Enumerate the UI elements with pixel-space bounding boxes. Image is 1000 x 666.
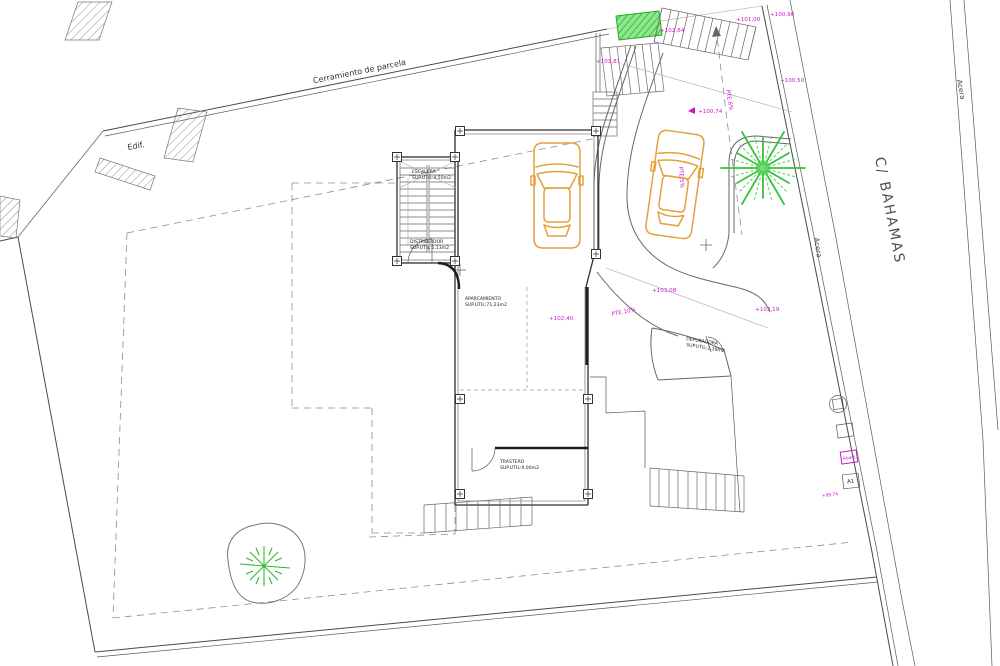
manhole-icon [830,396,847,413]
slope-label: PTE.6% [724,89,734,111]
sidewalk-label-2: Acera [812,237,823,258]
elevation-label: +103,19 [755,307,780,313]
green-planter [616,11,662,40]
fence-label: Cerramiento de parcela [312,58,407,86]
room-trastero-area: SUP.UTIL:9,00m2 [500,465,539,471]
a1-label: A1 [847,479,855,486]
elevation-label: +100,90 [770,12,795,18]
room-distribuidor-area: SUP.UTIL:5,13m2 [410,245,449,251]
room-distribuidor-name: DISTRIBUIDOR [410,239,444,245]
adjacent-building-label: Edif. [127,140,145,152]
car-on-driveway [642,129,708,240]
elevation-label: +101,00 [736,17,761,23]
site-plan-svg: Abast. A1 Cerramiento de parcela Edif. C… [0,0,1000,666]
elevation-label: +103,81 [596,59,621,65]
utility-box [836,423,854,438]
street-name-label: C/ BAHAMAS [871,156,907,266]
water-supply-label: Abast. [842,454,857,462]
slope-label: PTE.10% [611,307,636,318]
slope-label: PTE.5% [677,167,684,188]
elevation-label: +102,40 [549,316,574,322]
site-plan-page: Abast. A1 Cerramiento de parcela Edif. C… [0,0,1000,666]
round-tree-icon [228,523,306,603]
depuradora-terrace [424,328,744,533]
street-lines [790,0,998,666]
elevation-label: +99,74 [822,491,839,499]
car-in-garage [531,143,583,248]
room-escalera-name: ESCALERA [412,169,437,175]
adjacent-building-hatch [0,2,207,238]
room-aparcamiento-area: SUP.UTIL:71,23m2 [465,302,507,308]
elevation-label: +102,84 [660,28,685,34]
setback-lines [113,138,853,618]
elevation-label: +100,74 [698,109,723,115]
room-escalera-area: SUP.UTIL:4,50m2 [412,175,451,181]
sidewalk-label-1: Acera [955,79,966,100]
room-aparcamiento-name: APARCAMIENTO [465,296,502,302]
room-trastero-name: TRASTERO [499,459,525,465]
elevation-label: +100,50 [780,78,805,84]
elevation-label: +103,08 [652,288,677,294]
